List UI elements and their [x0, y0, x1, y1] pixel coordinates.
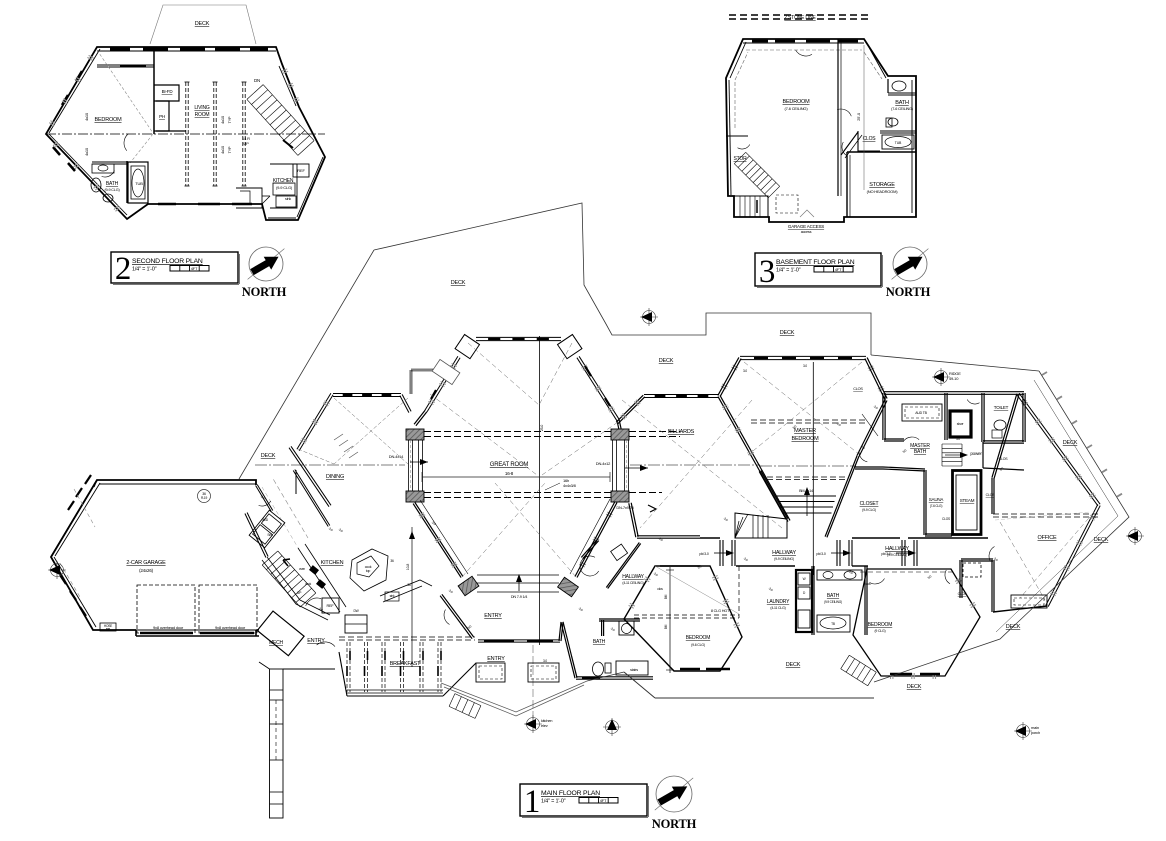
svg-text:clos: clos: [657, 587, 663, 591]
svg-text:OFFICE: OFFICE: [1038, 535, 1057, 541]
svg-text:R-19: R-19: [201, 496, 208, 500]
svg-text:3-0: 3-0: [860, 444, 866, 450]
svg-text:3: 3: [759, 254, 775, 290]
svg-text:3-0: 3-0: [723, 516, 729, 522]
svg-text:DECK: DECK: [1063, 440, 1078, 446]
svg-text:NORTH: NORTH: [886, 285, 931, 299]
svg-text:ENTRY: ENTRY: [307, 638, 325, 644]
svg-text:3-0: 3-0: [999, 466, 1005, 472]
svg-text:3-0: 3-0: [328, 526, 334, 532]
svg-text:(9-9 CEILING): (9-9 CEILING): [824, 600, 842, 604]
svg-text:3-0: 3-0: [543, 659, 547, 663]
svg-text:REF: REF: [297, 168, 305, 173]
svg-text:3-0: 3-0: [578, 606, 584, 612]
svg-text:DINING: DINING: [326, 474, 344, 480]
svg-text:GREAT ROOM: GREAT ROOM: [490, 462, 529, 468]
svg-text:(7-6 CEILING): (7-6 CEILING): [891, 107, 914, 111]
svg-text:CLOS: CLOS: [863, 136, 877, 142]
svg-text:3-0: 3-0: [658, 536, 664, 542]
svg-text:top: top: [366, 569, 371, 573]
svg-text:3-0: 3-0: [803, 364, 807, 368]
svg-text:4x10: 4x10: [84, 147, 89, 156]
svg-text:CLOS: CLOS: [942, 517, 950, 521]
svg-text:TOILET: TOILET: [994, 405, 1009, 410]
svg-text:10-8: 10-8: [406, 564, 410, 570]
svg-text:(9-6 CLG): (9-6 CLG): [691, 643, 705, 647]
svg-text:36: 36: [390, 559, 394, 563]
svg-text:CLOS: CLOS: [958, 592, 968, 596]
svg-text:4x10: 4x10: [84, 112, 89, 121]
svg-text:ENTRY: ENTRY: [487, 656, 505, 662]
svg-text:LIVING: LIVING: [194, 105, 210, 111]
svg-text:TUB: TUB: [895, 141, 902, 145]
svg-text:3-0: 3-0: [448, 588, 454, 594]
svg-text:BATH: BATH: [827, 593, 840, 599]
svg-text:3-0: 3-0: [768, 586, 774, 592]
svg-text:25'-0: 25'-0: [856, 112, 861, 121]
svg-text:GARAGE ACCESS: GARAGE ACCESS: [788, 224, 824, 229]
svg-text:4FT: 4FT: [191, 266, 198, 271]
svg-text:MECH: MECH: [269, 640, 284, 646]
svg-text:pkt 3-0: pkt 3-0: [881, 552, 891, 556]
svg-text:3-0: 3-0: [610, 626, 616, 632]
svg-text:porch: porch: [1031, 730, 1040, 735]
svg-text:AUD TB: AUD TB: [915, 411, 927, 415]
svg-text:D: D: [803, 591, 806, 595]
svg-text:BATH: BATH: [914, 449, 927, 455]
svg-text:4x4x3/8: 4x4x3/8: [563, 483, 577, 488]
svg-text:3-0: 3-0: [902, 448, 908, 454]
svg-text:3-0: 3-0: [743, 369, 747, 373]
svg-text:BEDROOM: BEDROOM: [94, 117, 122, 123]
svg-text:Snk: Snk: [267, 533, 273, 537]
svg-text:3-0: 3-0: [873, 404, 879, 410]
svg-text:3-0: 3-0: [653, 571, 659, 577]
svg-text:BEDROOM: BEDROOM: [782, 99, 810, 105]
svg-text:BEDROOM: BEDROOM: [791, 436, 819, 442]
svg-text:2 STONE LINE: 2 STONE LINE: [784, 15, 816, 21]
svg-text:(9-9 CEILING): (9-9 CEILING): [774, 557, 794, 561]
svg-text:(9 CLG): (9 CLG): [874, 629, 885, 633]
svg-text:9x8 overhead door: 9x8 overhead door: [153, 625, 184, 630]
svg-text:BM: BM: [664, 594, 668, 599]
svg-text:BATH: BATH: [593, 639, 606, 645]
svg-text:access: access: [801, 230, 812, 234]
svg-text:16-8: 16-8: [505, 471, 514, 476]
svg-text:(9-9 CLG): (9-9 CLG): [276, 185, 293, 190]
svg-text:(7-6 CEILING): (7-6 CEILING): [785, 106, 809, 111]
svg-text:1: 1: [524, 784, 540, 820]
svg-text:3-0: 3-0: [260, 494, 266, 500]
svg-text:9x8 overhead door: 9x8 overhead door: [215, 625, 246, 630]
svg-text:1/4" = 1'-0": 1/4" = 1'-0": [776, 268, 801, 274]
svg-text:STEAM: STEAM: [960, 498, 975, 503]
svg-text:sink: sink: [390, 594, 395, 598]
svg-text:BEDROOM: BEDROOM: [686, 635, 710, 641]
svg-text:BASEMENT FLOOR PLAN: BASEMENT FLOOR PLAN: [776, 259, 855, 266]
svg-text:pkt 3-0: pkt 3-0: [816, 552, 826, 556]
svg-text:SECOND FLOOR PLAN: SECOND FLOOR PLAN: [132, 258, 203, 265]
svg-text:HALLWAY: HALLWAY: [622, 574, 644, 580]
svg-text:(NO HEADROOM): (NO HEADROOM): [867, 189, 899, 194]
svg-text:1/4" = 1'-0": 1/4" = 1'-0": [132, 267, 157, 273]
svg-text:DECK: DECK: [195, 21, 210, 27]
svg-text:power: power: [970, 451, 982, 456]
svg-text:MASTER: MASTER: [794, 428, 816, 434]
svg-text:DECK: DECK: [907, 684, 922, 690]
svg-text:8 CLG HGT: 8 CLG HGT: [711, 609, 730, 613]
svg-text:DECK: DECK: [659, 358, 674, 364]
svg-text:DECK: DECK: [786, 662, 801, 668]
svg-text:DN: DN: [254, 78, 260, 83]
svg-text:(7-6 CLG): (7-6 CLG): [930, 504, 943, 508]
svg-text:NORTH: NORTH: [652, 817, 697, 831]
svg-text:3-0: 3-0: [848, 569, 854, 575]
svg-text:4FT: 4FT: [835, 267, 842, 272]
svg-text:4FT: 4FT: [600, 798, 607, 803]
svg-text:25-0: 25-0: [540, 425, 544, 431]
svg-text:4x10: 4x10: [220, 115, 225, 124]
svg-text:DECK: DECK: [451, 280, 466, 286]
svg-text:DN-4x12: DN-4x12: [596, 461, 611, 466]
svg-text:UP: UP: [243, 141, 249, 146]
svg-text:BIB: BIB: [106, 627, 110, 631]
svg-text:NORTH: NORTH: [242, 285, 287, 299]
svg-text:CLOS: CLOS: [986, 493, 996, 497]
svg-text:TB: TB: [831, 622, 835, 626]
svg-text:STORAGE: STORAGE: [869, 182, 895, 188]
svg-text:CLOSET: CLOSET: [860, 501, 879, 507]
svg-text:elev: elev: [541, 723, 548, 728]
svg-text:3-0: 3-0: [431, 520, 437, 526]
svg-text:DN 7-9 1/4: DN 7-9 1/4: [511, 595, 527, 599]
svg-text:(4-11 CLG): (4-11 CLG): [770, 606, 785, 610]
svg-text:1/4" = 1'-0": 1/4" = 1'-0": [541, 799, 566, 805]
svg-text:LAUNDRY: LAUNDRY: [767, 599, 790, 605]
svg-text:(9-9 CLG): (9-9 CLG): [862, 508, 876, 512]
svg-text:BILLIARDS: BILLIARDS: [668, 429, 695, 435]
svg-text:36: 36: [407, 583, 411, 587]
svg-text:2: 2: [115, 251, 131, 287]
svg-text:SAUNA: SAUNA: [929, 497, 944, 502]
svg-text:pkt 3-0: pkt 3-0: [699, 552, 709, 556]
svg-text:3-0: 3-0: [338, 527, 344, 533]
svg-text:oven: oven: [299, 567, 306, 571]
svg-text:3-0: 3-0: [743, 556, 749, 562]
svg-text:UP: UP: [297, 591, 302, 595]
svg-text:4x10: 4x10: [220, 145, 225, 154]
svg-text:BI-FD: BI-FD: [162, 89, 174, 94]
svg-text:TUB: TUB: [135, 181, 143, 186]
svg-text:HALLWAY: HALLWAY: [772, 550, 796, 556]
svg-text:TYP: TYP: [228, 146, 232, 153]
svg-text:REF: REF: [327, 604, 335, 608]
svg-text:3-0: 3-0: [836, 421, 842, 427]
svg-text:shwr: shwr: [957, 422, 965, 426]
svg-text:MAIN FLOOR PLAN: MAIN FLOOR PLAN: [541, 790, 600, 797]
svg-text:W/D: W/D: [262, 518, 269, 522]
svg-text:(24x26): (24x26): [139, 568, 154, 573]
svg-text:sink: sink: [285, 197, 291, 201]
svg-text:BATH: BATH: [895, 100, 909, 106]
svg-text:(4-11 CEILING): (4-11 CEILING): [622, 581, 643, 585]
svg-text:CLOS: CLOS: [853, 387, 863, 391]
svg-text:TYP: TYP: [228, 116, 232, 123]
svg-text:stairs: stairs: [630, 668, 638, 672]
svg-text:STOR: STOR: [734, 156, 748, 162]
svg-text:3-0: 3-0: [467, 624, 473, 630]
svg-text:BEDROOM: BEDROOM: [868, 622, 892, 628]
svg-text:DECK: DECK: [780, 330, 795, 336]
svg-text:2-CAR GARAGE: 2-CAR GARAGE: [126, 560, 166, 566]
svg-text:ENTRY: ENTRY: [484, 613, 502, 619]
svg-text:3-0: 3-0: [956, 437, 960, 441]
svg-text:DN-4x14: DN-4x14: [389, 454, 404, 459]
svg-text:49-10: 49-10: [949, 376, 959, 381]
svg-text:cook: cook: [305, 582, 312, 586]
svg-text:BATH: BATH: [106, 181, 119, 187]
svg-text:ROOM: ROOM: [195, 112, 210, 118]
svg-text:DECK: DECK: [261, 453, 276, 459]
svg-text:3-0: 3-0: [927, 574, 933, 580]
svg-text:3-0: 3-0: [697, 564, 703, 570]
svg-text:PH: PH: [159, 114, 165, 119]
svg-text:BM-4x14: BM-4x14: [799, 489, 813, 493]
svg-text:(9-9 CLG): (9-9 CLG): [104, 188, 120, 192]
svg-text:clos: clos: [866, 582, 871, 586]
svg-text:KITCHEN: KITCHEN: [321, 560, 344, 566]
svg-text:BREAKFAST: BREAKFAST: [390, 661, 421, 667]
svg-text:BM: BM: [664, 624, 668, 629]
svg-text:DW: DW: [353, 609, 359, 613]
svg-text:W: W: [803, 577, 806, 581]
